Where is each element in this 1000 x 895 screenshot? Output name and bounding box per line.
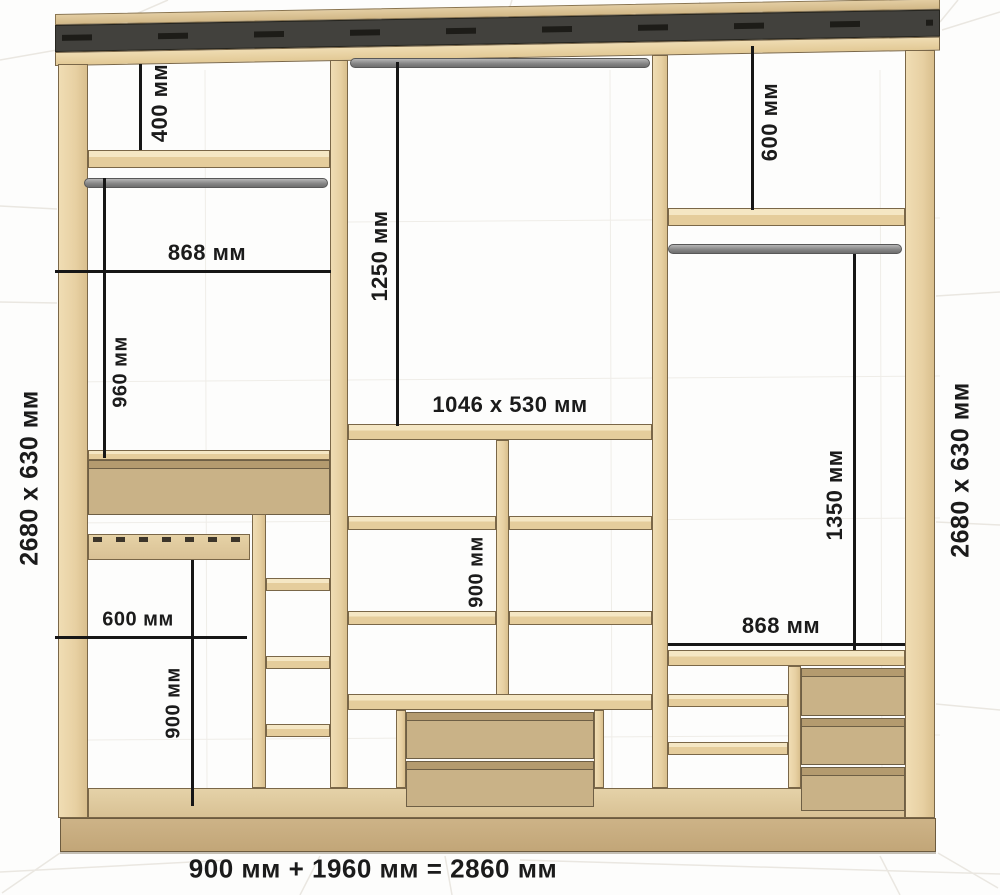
dim-line-left-hanging: [103, 178, 106, 458]
middle-drawer-1: [406, 712, 594, 759]
left-big-drawer: [88, 460, 330, 515]
dim-label-left-hanging: 960 мм: [110, 336, 133, 408]
right-cubby-shelf-2: [668, 742, 788, 755]
right-wall-panel: [905, 50, 935, 818]
dim-line-left-lower-width: [55, 636, 247, 639]
dim-line-right-top-gap: [751, 46, 754, 210]
dim-line-middle-hanging: [396, 62, 399, 426]
dim-label-right-hanging: 1350 мм: [822, 449, 848, 540]
left-top-shelf: [88, 150, 330, 168]
dim-label-right-width: 868 мм: [742, 613, 820, 639]
right-drawer-3: [801, 767, 905, 811]
right-top-shelf: [668, 208, 905, 226]
left-trouser-rack: [88, 534, 250, 560]
middle-hanging-rod: [350, 58, 650, 68]
left-column-panel: [252, 514, 266, 788]
dim-label-right-top-gap: 600 мм: [757, 83, 783, 161]
left-cubby-shelf-2: [266, 656, 330, 669]
dim-label-middle-hanging: 1250 мм: [367, 210, 393, 301]
right-hanging-rod: [668, 244, 902, 254]
left-cubby-shelf-1: [266, 578, 330, 591]
right-drawer-1: [801, 668, 905, 716]
middle-vertical-divider: [496, 440, 509, 696]
left-drawer-top-shelf: [88, 450, 330, 460]
dim-label-left-lower-height: 900 мм: [163, 667, 186, 739]
middle-shelf-left-b: [348, 611, 496, 625]
wardrobe-diagram: 400 мм 868 мм 960 мм 600 мм 900 мм 1250 …: [0, 0, 1000, 895]
dim-label-middle-compartment: 900 мм: [466, 536, 489, 608]
right-vertical-divider: [788, 666, 801, 788]
right-cubby-shelf-1: [668, 694, 788, 707]
total-width-label: 900 мм + 1960 мм = 2860 мм: [189, 854, 557, 885]
overall-size-label-right: 2680 x 630 мм: [947, 382, 976, 558]
dim-line-left-lower-height: [191, 560, 194, 806]
left-wall-panel: [58, 64, 88, 818]
divider-left-middle: [330, 60, 348, 788]
dim-line-left-width: [55, 270, 331, 273]
dim-line-left-top-gap: [139, 64, 142, 150]
middle-shelf-right-a: [509, 516, 652, 530]
left-cubby-shelf-3: [266, 724, 330, 737]
middle-shelf-left-a: [348, 516, 496, 530]
middle-drawer-2: [406, 761, 594, 807]
dim-label-middle-panel: 1046 x 530 мм: [432, 392, 587, 418]
dim-label-left-lower-width: 600 мм: [102, 609, 174, 632]
divider-middle-right: [652, 55, 668, 788]
dim-label-left-width: 868 мм: [168, 240, 246, 266]
right-long-shelf: [668, 650, 905, 666]
middle-shelf-right-b: [509, 611, 652, 625]
dim-line-right-width: [668, 643, 905, 646]
right-drawer-2: [801, 718, 905, 765]
middle-main-shelf: [348, 424, 652, 440]
plinth: [60, 818, 936, 852]
overall-size-label-left: 2680 x 630 мм: [16, 390, 45, 566]
dim-line-right-hanging: [853, 254, 856, 650]
middle-drawer-support-right: [594, 710, 604, 788]
left-hanging-rod: [84, 178, 328, 188]
middle-long-shelf: [348, 694, 652, 710]
middle-drawer-support-left: [396, 710, 406, 788]
dim-label-left-top-gap: 400 мм: [147, 64, 173, 142]
